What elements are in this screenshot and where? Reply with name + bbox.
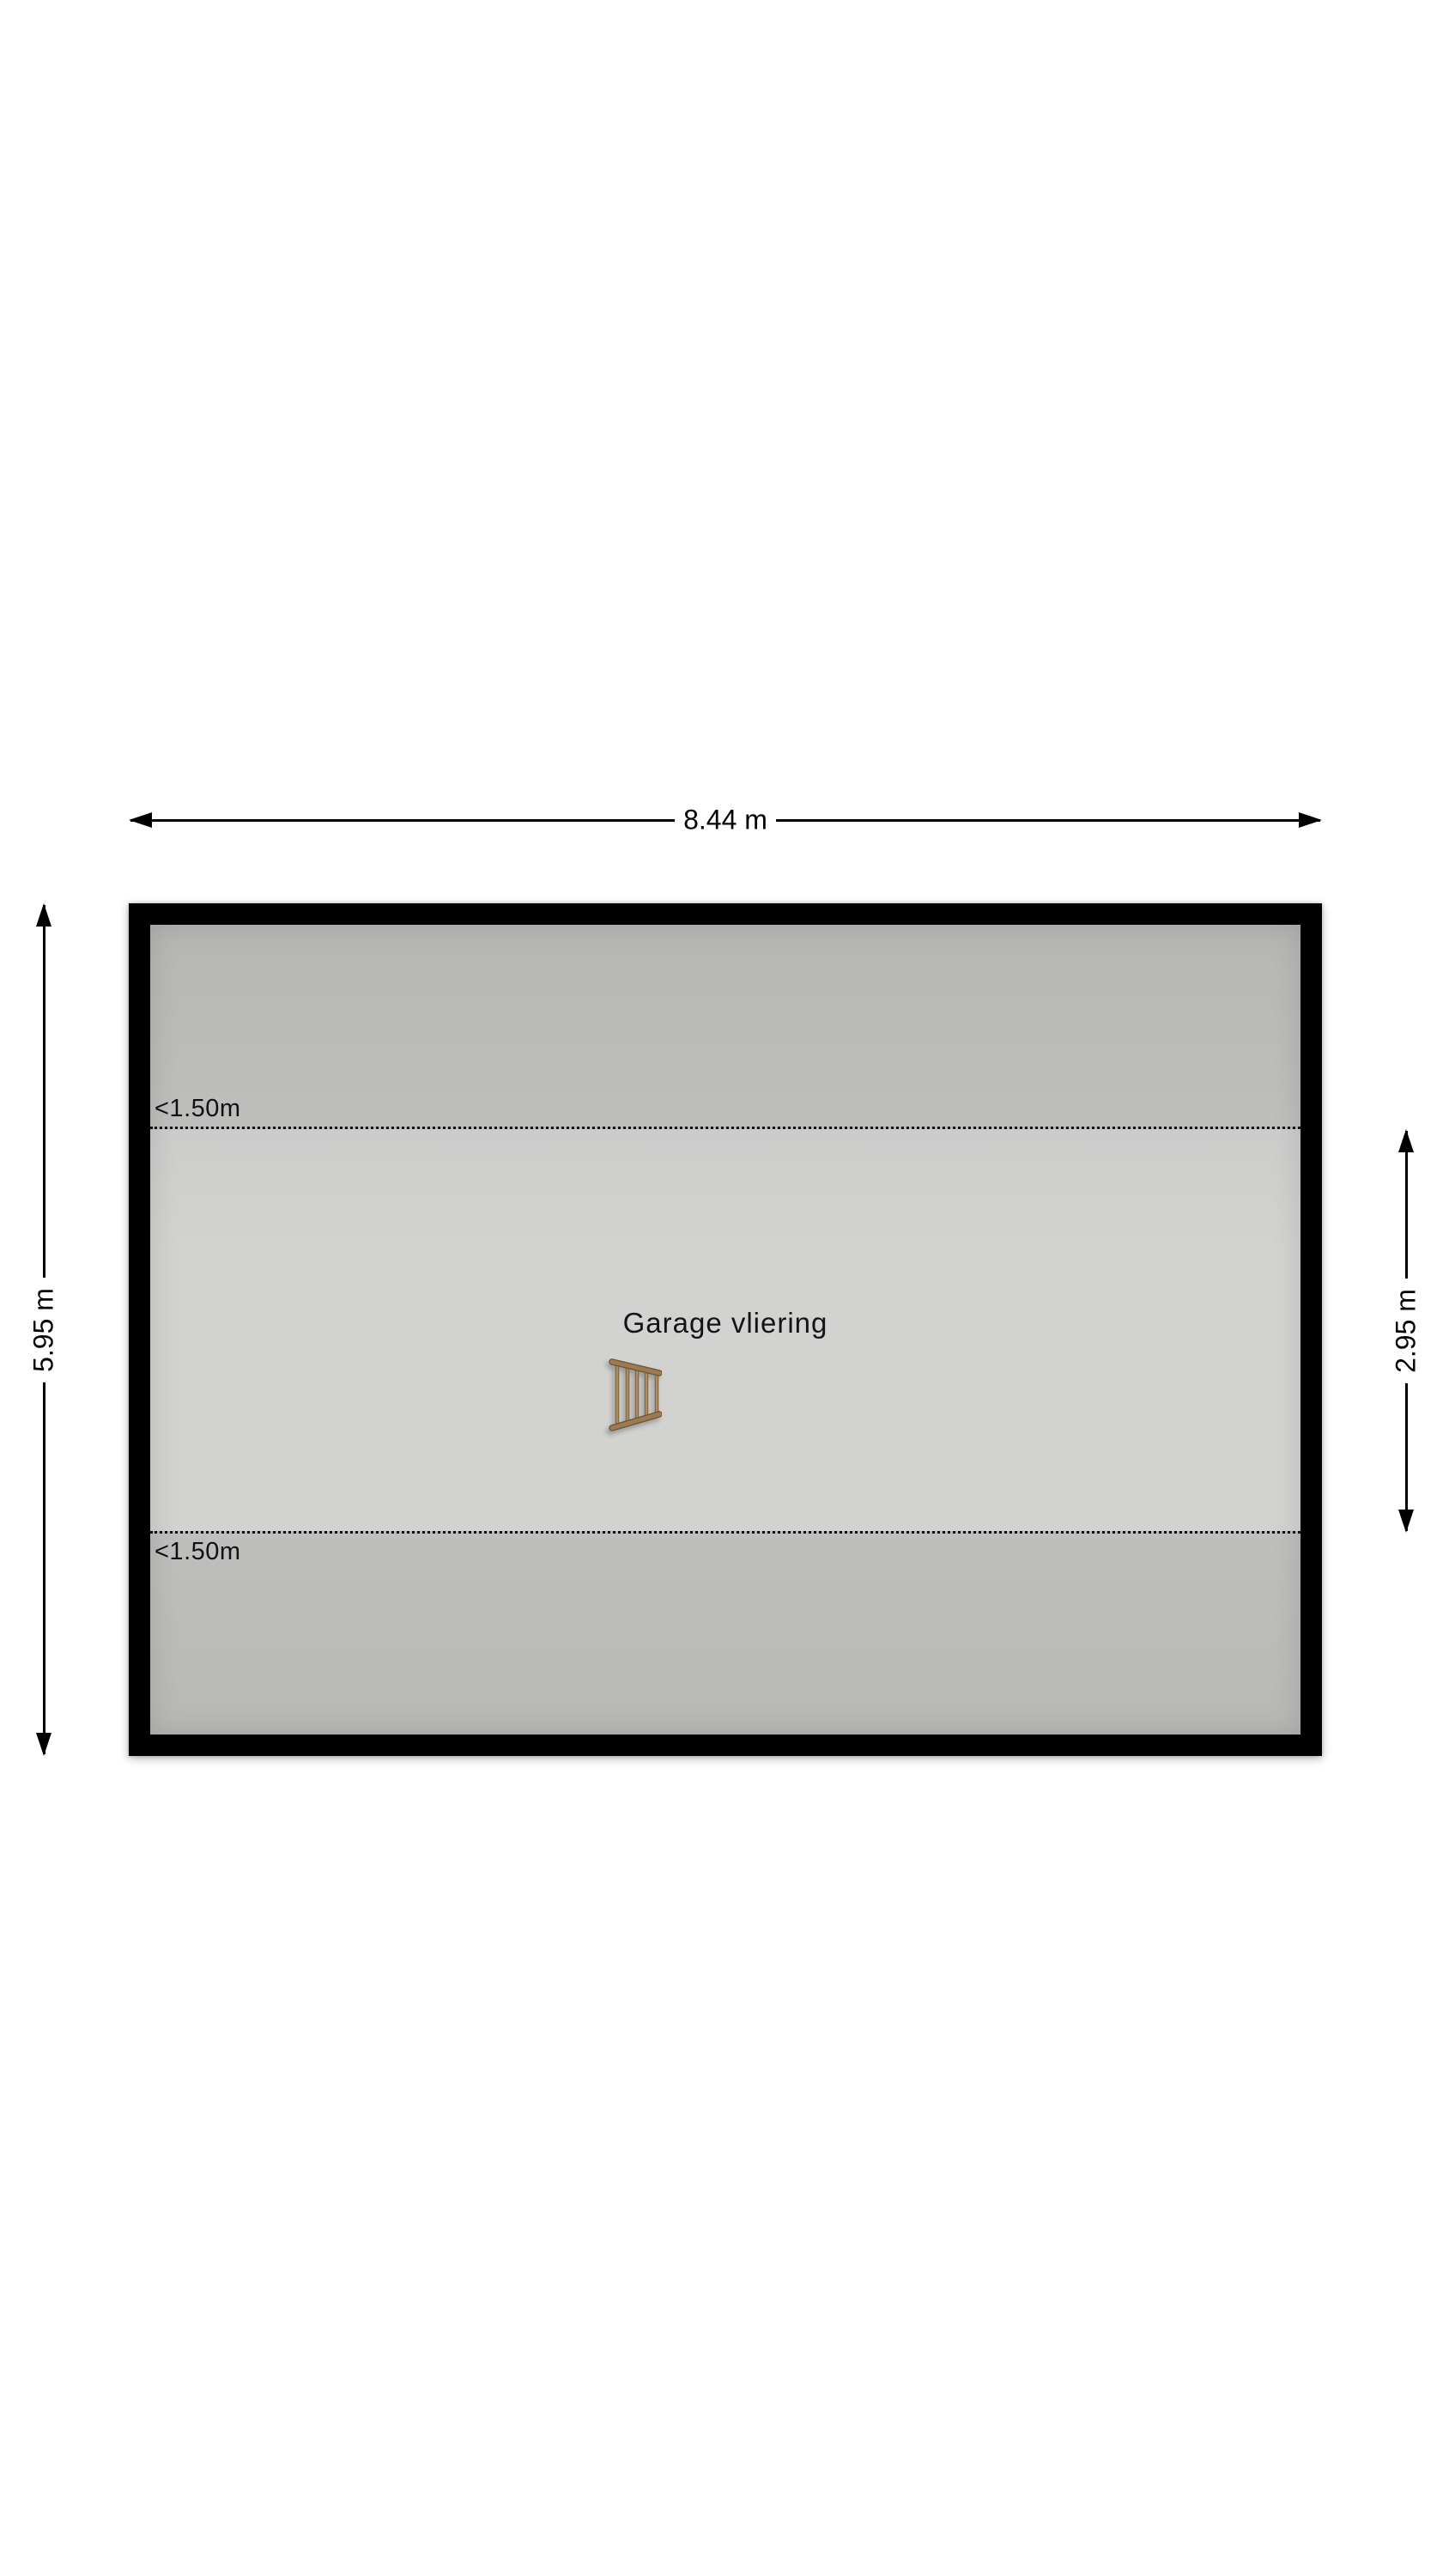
dimension-total-depth: 5.95 m xyxy=(31,903,57,1756)
full-height-zone: Garage vliering xyxy=(150,1129,1300,1531)
dimension-total-width: 8.44 m xyxy=(129,807,1322,833)
room-interior: <1.50m Garage vliering xyxy=(150,925,1300,1735)
arrow-left-icon xyxy=(129,812,152,828)
floorplan-page: 8.44 m 5.95 m 2.95 m <1.50m Garage vlier… xyxy=(0,0,1449,2576)
dimension-full-height-depth-label: 2.95 m xyxy=(1391,1279,1422,1383)
dimension-total-depth-label: 5.95 m xyxy=(28,1278,60,1382)
floorplan-room: <1.50m Garage vliering xyxy=(129,903,1322,1756)
headroom-label-bottom: <1.50m xyxy=(155,1539,241,1566)
arrow-up-icon xyxy=(36,903,52,927)
arrow-down-icon xyxy=(1398,1510,1414,1533)
dimension-full-height-depth: 2.95 m xyxy=(1393,1129,1419,1533)
loft-ladder-icon xyxy=(602,1355,662,1434)
dimension-total-width-label: 8.44 m xyxy=(675,805,776,836)
room-label: Garage vliering xyxy=(150,1307,1300,1340)
arrow-up-icon xyxy=(1398,1129,1414,1152)
headroom-label-top: <1.50m xyxy=(155,1096,241,1123)
low-headroom-zone-bottom: <1.50m xyxy=(150,1531,1300,1735)
arrow-down-icon xyxy=(36,1733,52,1756)
arrow-right-icon xyxy=(1299,812,1322,828)
low-headroom-zone-top: <1.50m xyxy=(150,925,1300,1129)
